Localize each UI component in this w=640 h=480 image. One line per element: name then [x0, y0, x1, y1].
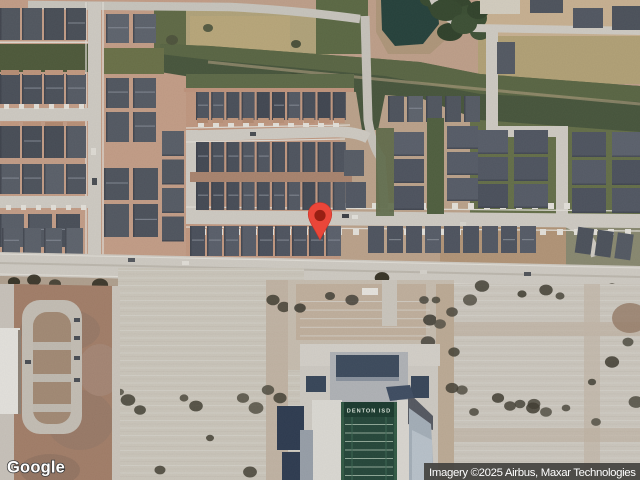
- svg-text:Imagery ©2025 Airbus, Maxar Te: Imagery ©2025 Airbus, Maxar Technologies: [429, 467, 636, 479]
- svg-text:Google: Google: [7, 459, 65, 477]
